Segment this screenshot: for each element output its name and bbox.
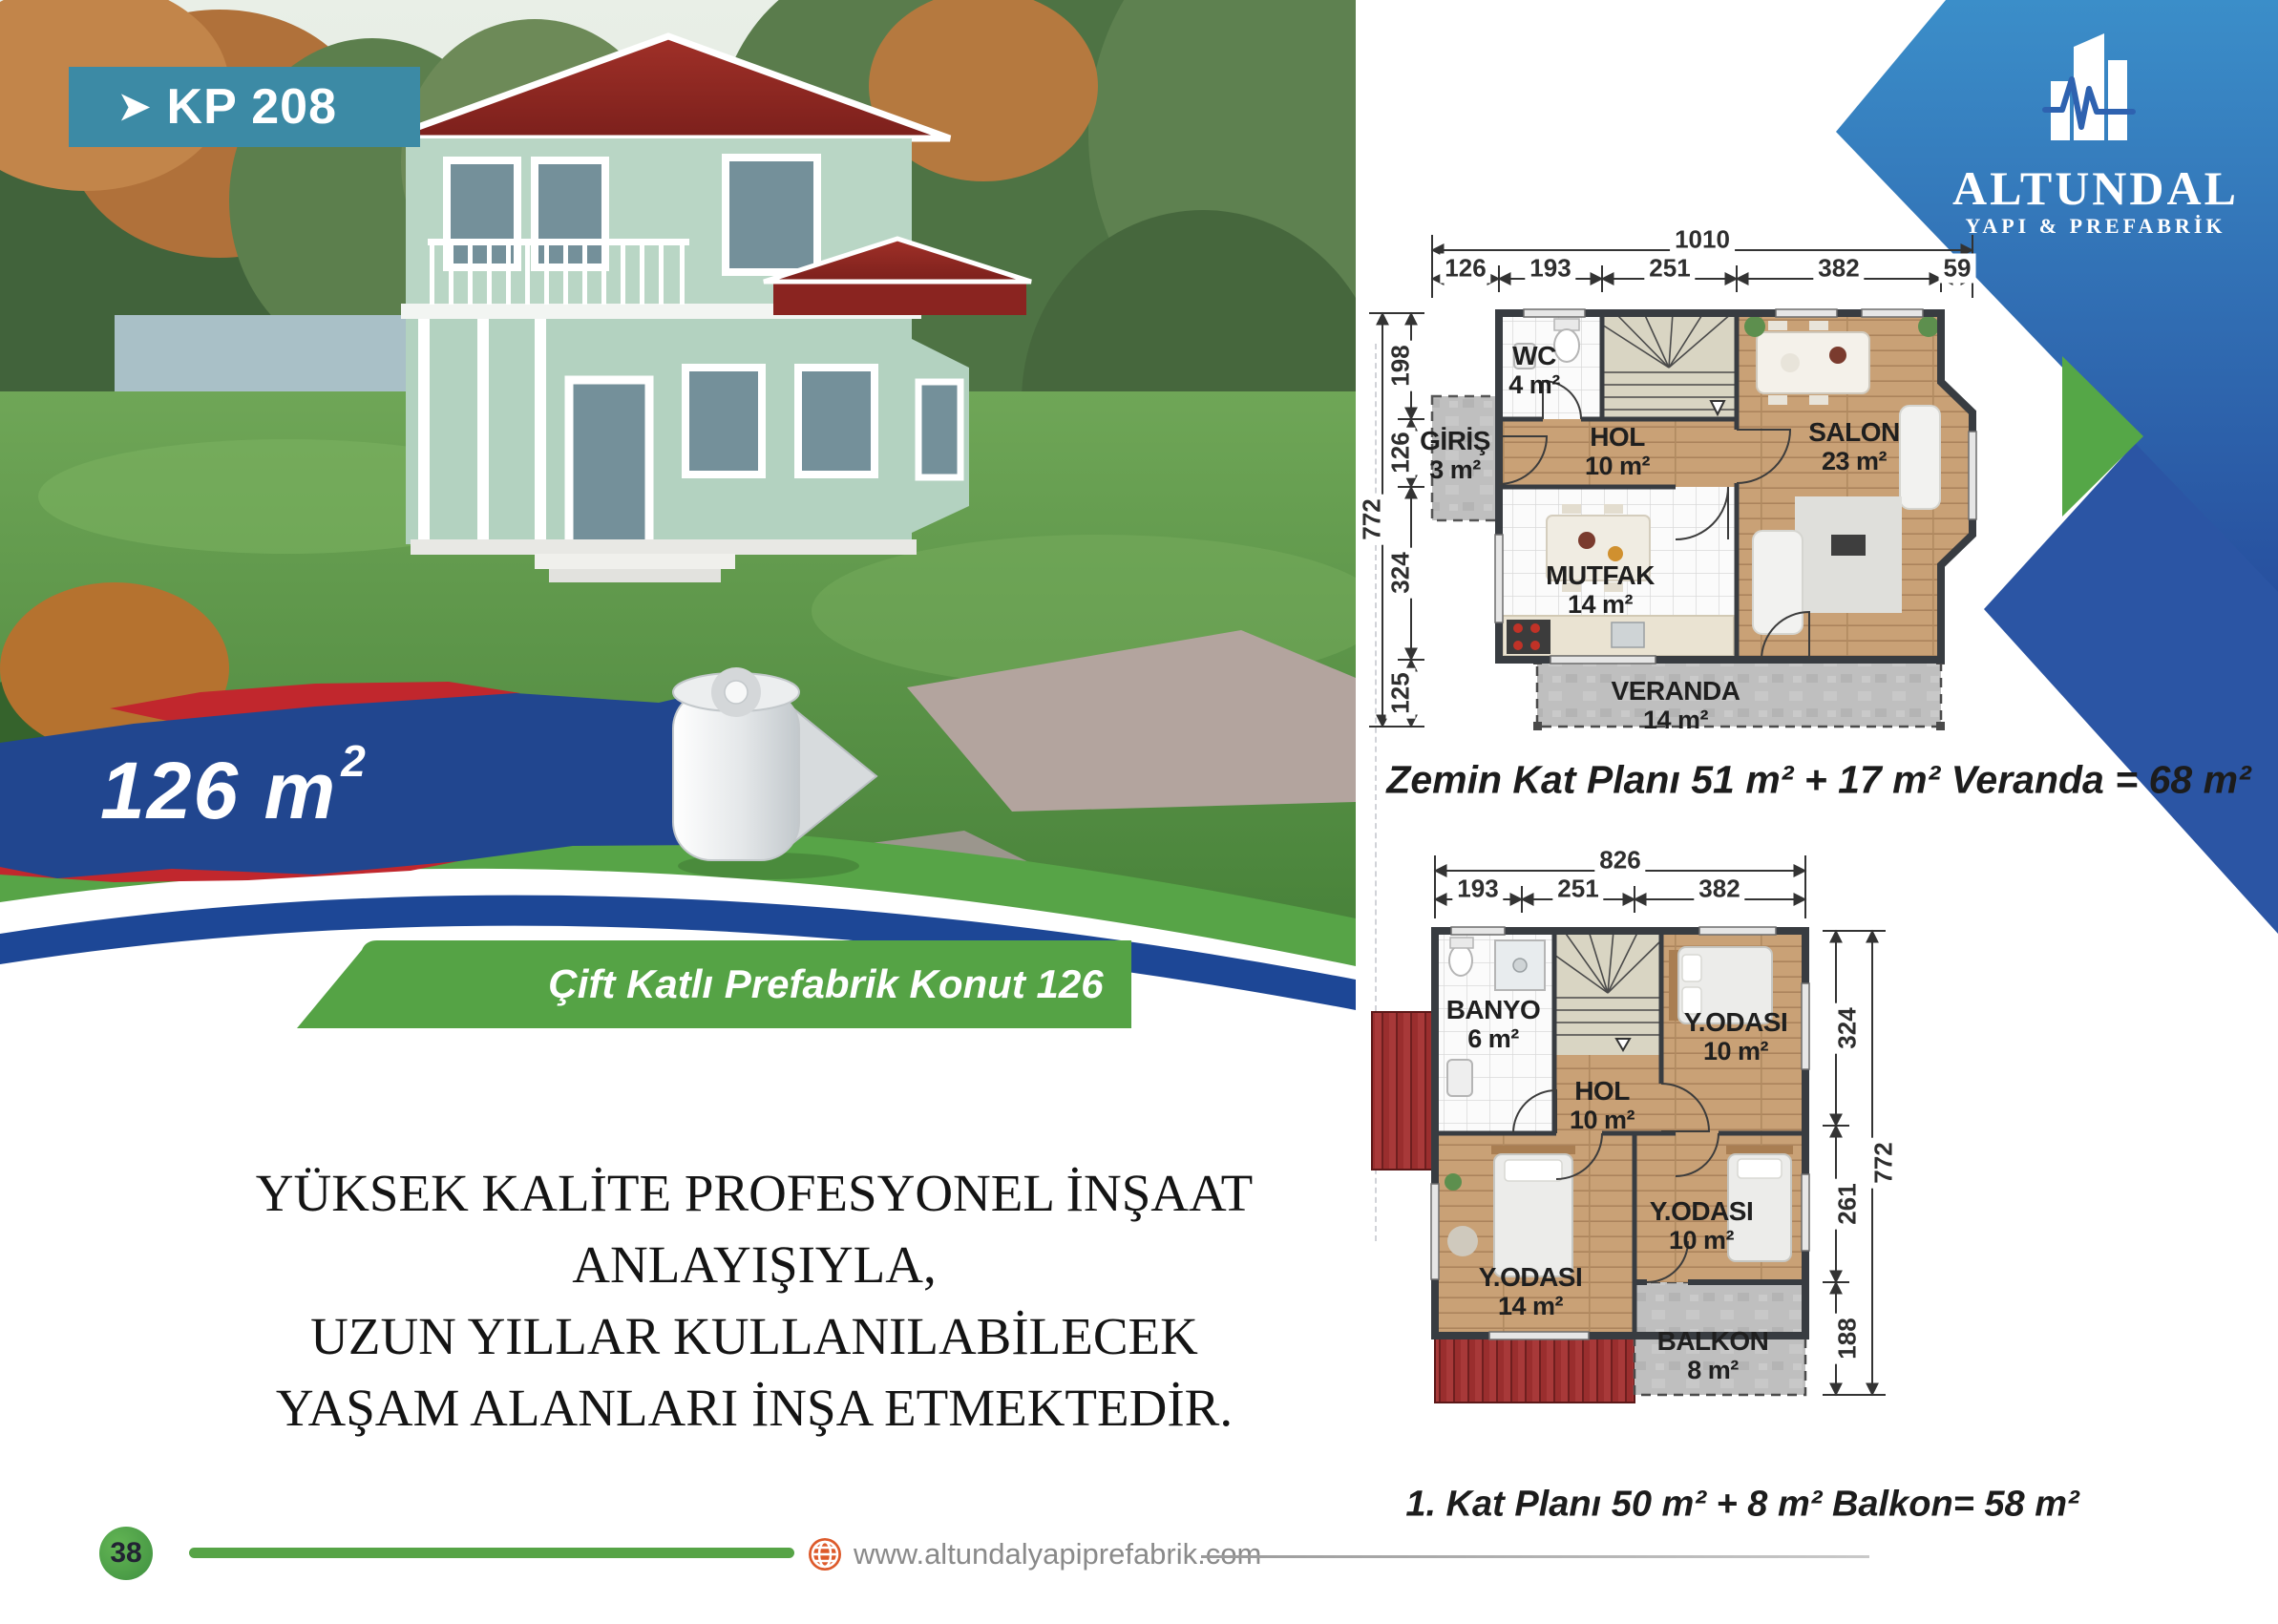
dim-segment: 382 [1694, 875, 1744, 904]
room-area: 6 m² [1446, 1024, 1541, 1053]
dim-total-height-2: 772 [1869, 1137, 1899, 1188]
dim-segment: 251 [1552, 875, 1603, 904]
room-area: 10 m² [1650, 1226, 1754, 1255]
dim-segment: 126 [1386, 427, 1416, 477]
room-name: GİRİŞ [1420, 427, 1490, 455]
room-name: Y.ODASI [1684, 1008, 1788, 1037]
room-label-yodasi-top: Y.ODASI 10 m² [1684, 1008, 1788, 1065]
dim-segment: 125 [1386, 667, 1416, 718]
page-number-badge: 38 [99, 1527, 153, 1580]
rolled-plan-scroll [673, 667, 876, 879]
room-name: SALON [1808, 418, 1900, 447]
dim-segment: 324 [1833, 1002, 1863, 1053]
room-name: BALKON [1657, 1327, 1769, 1356]
room-name: HOL [1570, 1077, 1635, 1106]
dim-segment: 382 [1813, 254, 1864, 284]
logo-company-name: ALTUNDAL [1938, 160, 2253, 216]
room-area: 3 m² [1420, 455, 1490, 484]
dim-total-height: 772 [1358, 494, 1387, 544]
dim-segment: 261 [1833, 1178, 1863, 1229]
room-label-giris: GİRİŞ 3 m² [1420, 427, 1490, 484]
room-area: 10 m² [1570, 1106, 1635, 1134]
room-label-veranda: VERANDA 14 m² [1612, 677, 1740, 734]
dim-segment: 198 [1386, 340, 1416, 390]
room-label-hol: HOL 10 m² [1585, 423, 1650, 480]
dim-total-width-2: 826 [1594, 846, 1645, 875]
room-label-yodasi-14: Y.ODASI 14 m² [1479, 1263, 1583, 1320]
room-area: 10 m² [1585, 452, 1650, 480]
first-floor-caption: 1. Kat Planı 50 m² + 8 m² Balkon= 58 m² [1405, 1485, 2078, 1526]
description-line: ANLAYIŞIYLA, [191, 1229, 1318, 1300]
room-area: 8 m² [1657, 1356, 1769, 1384]
room-label-yodasi-mid: Y.ODASI 10 m² [1650, 1197, 1754, 1255]
room-label-mutfak: MUTFAK 14 m² [1546, 561, 1655, 619]
room-name: Y.ODASI [1479, 1263, 1583, 1292]
model-badge: ➤KP 208 [69, 67, 420, 147]
area-sup: 2 [341, 736, 368, 786]
dim-segment: 188 [1833, 1313, 1863, 1363]
footer-green-rule [189, 1548, 794, 1558]
room-label-salon: SALON 23 m² [1808, 418, 1900, 475]
product-banner: Çift Katlı Prefabrik Konut 126 m2 [282, 940, 1131, 1028]
dim-segment: 251 [1644, 254, 1695, 284]
brochure-page: ➤KP 208 126 m2 Çift Katlı Prefabrik Konu… [0, 0, 2278, 1624]
model-code: KP 208 [167, 79, 338, 135]
website-link[interactable]: www.altundalyapiprefabrik.com [854, 1537, 1261, 1571]
footer-gray-rule [1201, 1555, 1869, 1558]
room-name: WC [1508, 342, 1560, 370]
dim-total-width: 1010 [1670, 225, 1735, 255]
room-name: Y.ODASI [1650, 1197, 1754, 1226]
room-area: 10 m² [1684, 1037, 1788, 1065]
entry-roof [1372, 1012, 1435, 1170]
room-area: 4 m² [1508, 370, 1560, 399]
ground-floor-caption: Zemin Kat Planı 51 m² + 17 m² Veranda = … [1386, 758, 2250, 803]
description-line: YAŞAM ALANLARI İNŞA ETMEKTEDİR. [191, 1372, 1318, 1444]
room-name: VERANDA [1612, 677, 1740, 706]
globe-icon [807, 1536, 843, 1572]
dim-segment: 193 [1452, 875, 1503, 904]
dim-segment: 126 [1440, 254, 1490, 284]
banner-title: Çift Katlı Prefabrik Konut 126 m2 [520, 940, 1131, 1028]
company-description: YÜKSEK KALİTE PROFESYONEL İNŞAAT ANLAYIŞ… [191, 1157, 1318, 1444]
room-area: 14 m² [1479, 1292, 1583, 1320]
dim-segment: 59 [1939, 254, 1976, 284]
room-label-balkon: BALKON 8 m² [1657, 1327, 1769, 1384]
badge-arrow-icon: ➤ [118, 86, 152, 128]
description-line: UZUN YILLAR KULLANILABİLECEK [191, 1300, 1318, 1372]
veranda-roof [1435, 1336, 1635, 1403]
dim-segment: 324 [1386, 547, 1416, 598]
description-line: YÜKSEK KALİTE PROFESYONEL İNŞAAT [191, 1157, 1318, 1229]
room-area: 14 m² [1612, 706, 1740, 734]
room-label-banyo: BANYO 6 m² [1446, 996, 1541, 1053]
room-label-hol-2: HOL 10 m² [1570, 1077, 1635, 1134]
room-name: HOL [1585, 423, 1650, 452]
area-value: 126 m [100, 746, 337, 835]
room-area: 14 m² [1546, 590, 1655, 619]
room-label-wc: WC 4 m² [1508, 342, 1560, 399]
room-name: BANYO [1446, 996, 1541, 1024]
dim-segment: 193 [1525, 254, 1575, 284]
room-name: MUTFAK [1546, 561, 1655, 590]
room-area: 23 m² [1808, 447, 1900, 475]
banner-title-sup: 2 [838, 1059, 851, 1085]
area-ribbon-label: 126 m2 [100, 735, 368, 837]
